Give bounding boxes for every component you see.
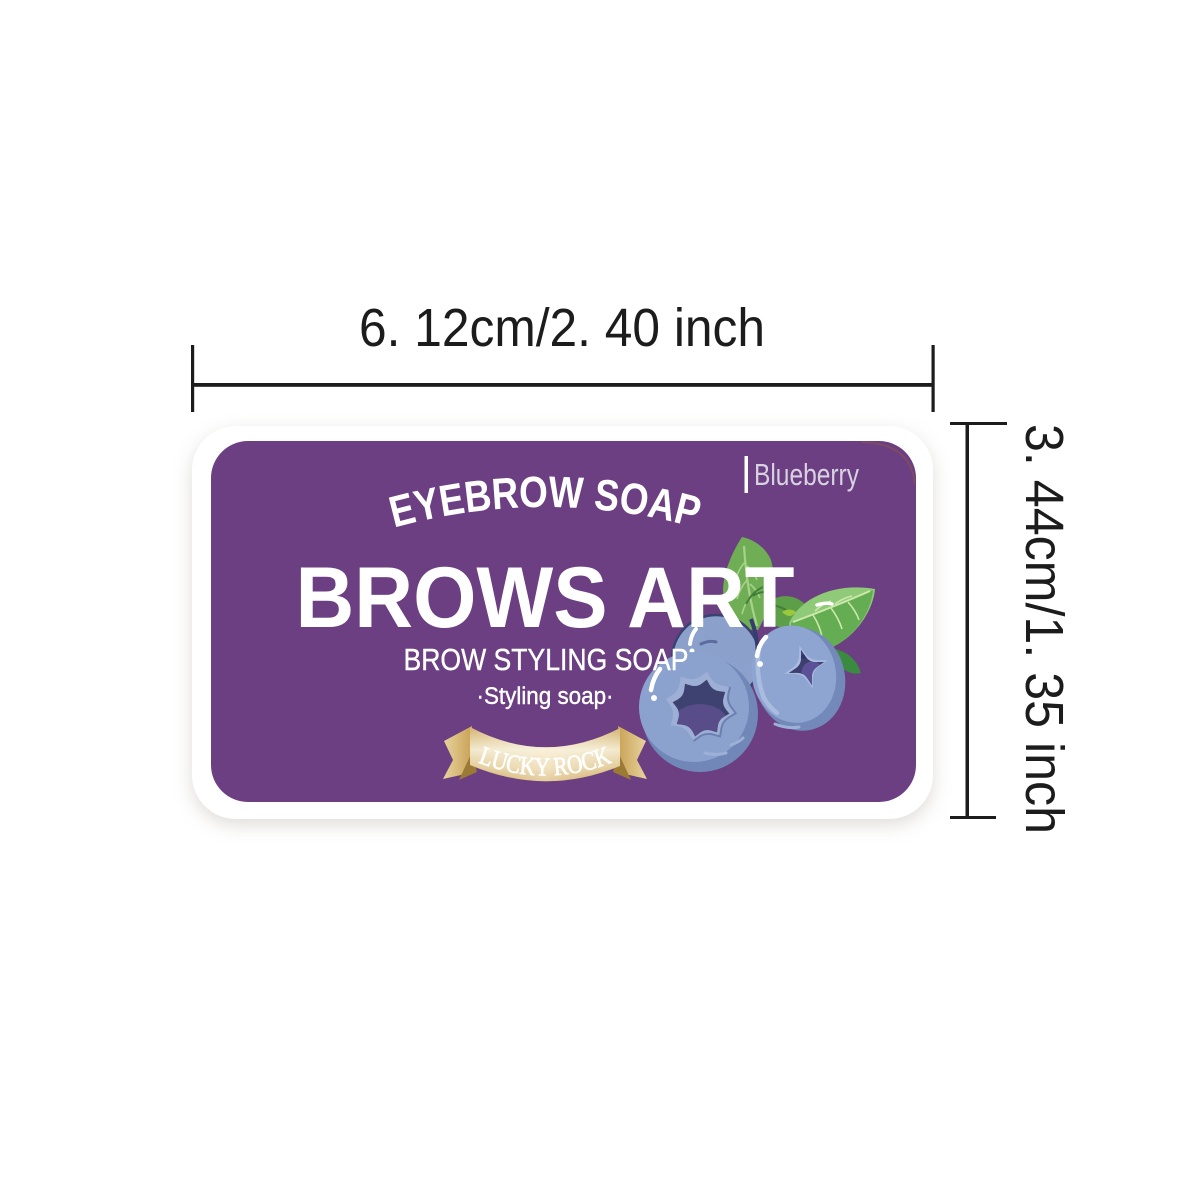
svg-text:BROWS ART: BROWS ART	[296, 550, 795, 646]
svg-text:·Styling soap·: ·Styling soap·	[477, 683, 614, 710]
svg-text:BROW STYLING SOAP: BROW STYLING SOAP	[404, 642, 689, 677]
svg-text:3. 44cm/1. 35 inch: 3. 44cm/1. 35 inch	[1014, 424, 1074, 834]
svg-text:Blueberry: Blueberry	[754, 457, 859, 492]
svg-text:6. 12cm/2. 40 inch: 6. 12cm/2. 40 inch	[359, 298, 765, 358]
